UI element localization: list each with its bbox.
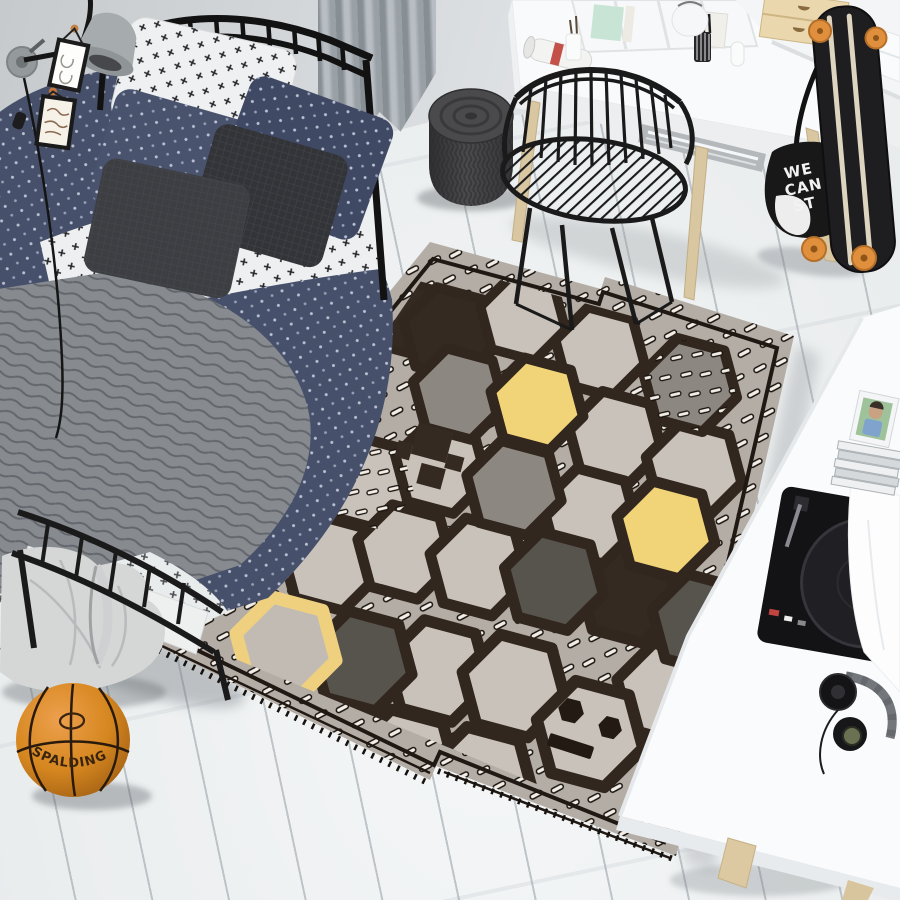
bedroom-scene: WE CAN ST [0,0,900,900]
lamp-lever [30,40,44,52]
scene-art: WE CAN ST [0,0,900,900]
tonearm-pivot [793,496,809,512]
small-vase [731,42,744,66]
